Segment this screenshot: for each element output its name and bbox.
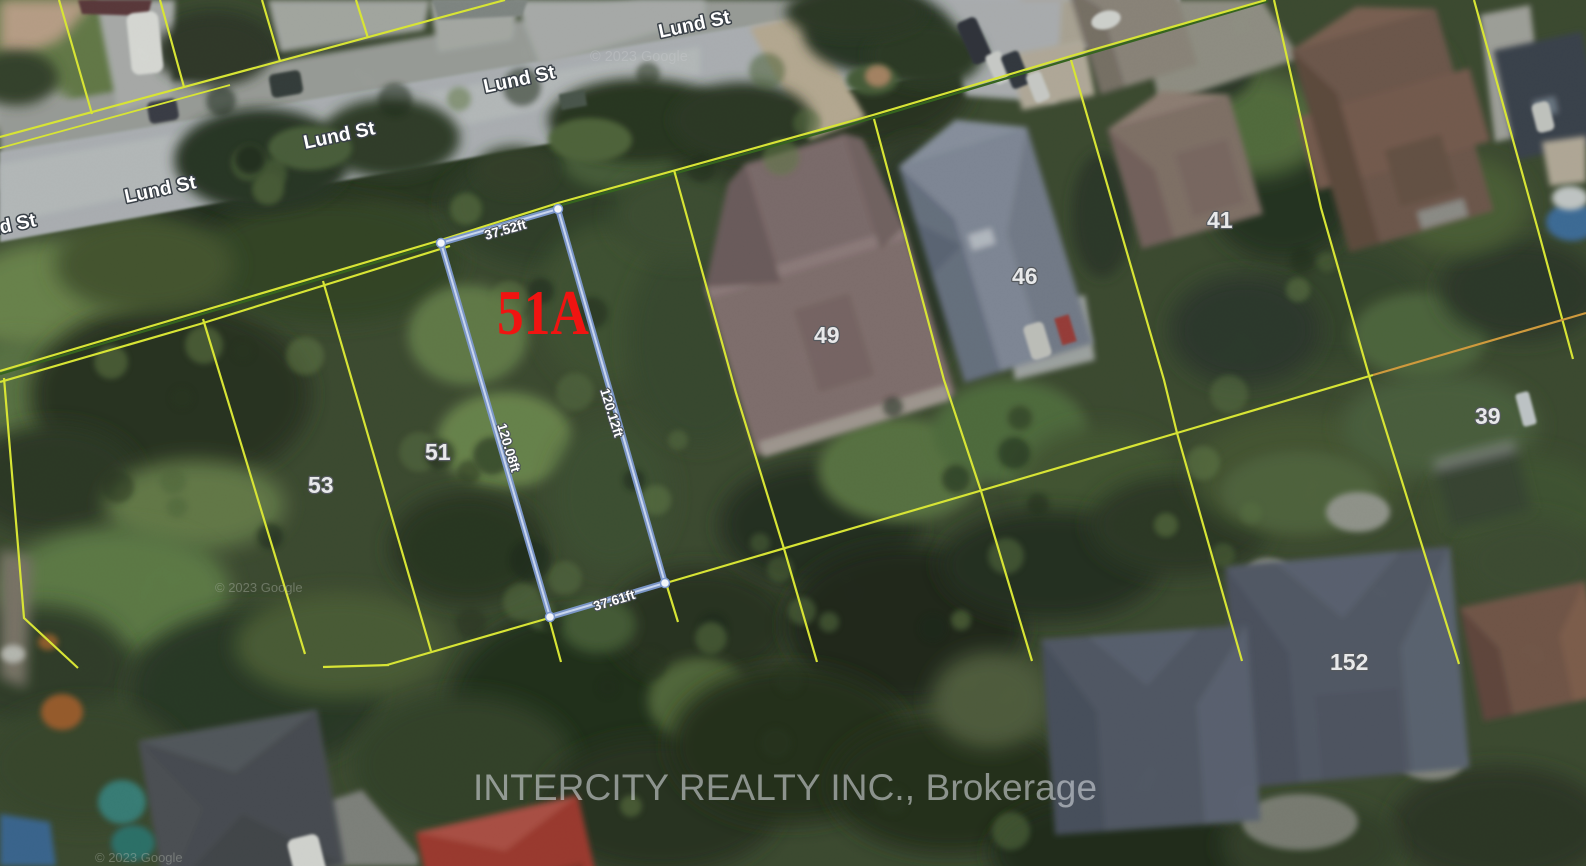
svg-text:INTERCITY REALTY INC., Brokera: INTERCITY REALTY INC., Brokerage — [473, 767, 1097, 808]
svg-text:© 2023 Google: © 2023 Google — [215, 580, 303, 595]
svg-text:39: 39 — [1475, 403, 1501, 429]
svg-text:© 2023 Google: © 2023 Google — [590, 49, 688, 65]
svg-text:© 2023 Google: © 2023 Google — [95, 850, 183, 865]
svg-text:49: 49 — [814, 322, 840, 348]
svg-text:51A: 51A — [497, 278, 589, 348]
svg-text:152: 152 — [1330, 649, 1368, 675]
svg-text:51: 51 — [425, 439, 451, 465]
svg-text:46: 46 — [1012, 263, 1038, 289]
svg-text:41: 41 — [1207, 207, 1233, 233]
svg-text:53: 53 — [308, 472, 334, 498]
